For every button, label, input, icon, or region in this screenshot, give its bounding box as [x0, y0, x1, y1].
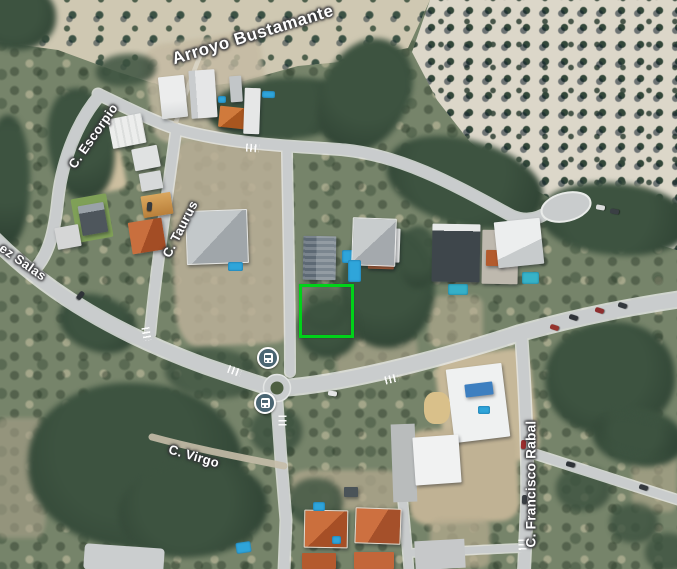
house-roof: [78, 202, 109, 236]
swimming-pool: [262, 91, 275, 98]
swimming-pool: [235, 541, 251, 554]
satellite-map-canvas[interactable]: Arroyo Bustamante C. Escorpio C. Taurus …: [0, 0, 677, 569]
house-under-construction: [140, 192, 173, 218]
swimming-pool: [478, 406, 490, 414]
crosswalk: [279, 416, 287, 429]
roundabout-island: [271, 382, 284, 395]
crosswalk: [246, 144, 260, 153]
house-roof: [185, 209, 249, 265]
paved-junction: [414, 539, 465, 569]
building: [412, 434, 461, 485]
building: [243, 88, 261, 135]
swimming-pool: [522, 272, 539, 284]
swimming-pool: [313, 502, 325, 511]
swimming-pool: [332, 536, 341, 544]
swimming-pool: [218, 96, 226, 103]
house-roof: [354, 507, 401, 545]
building: [431, 224, 480, 283]
house-roof: [302, 553, 336, 569]
bus-stop-icon[interactable]: [257, 347, 279, 369]
label-calle-francisco-rabal: C. Francisco Rabal: [524, 421, 539, 548]
building: [158, 75, 188, 119]
swimming-pool: [348, 260, 361, 282]
bus-icon: [261, 398, 270, 408]
cul-de-sac: [538, 187, 593, 226]
building: [188, 69, 217, 119]
building: [494, 218, 545, 269]
building: [54, 224, 81, 250]
car: [328, 390, 338, 396]
house-roof: [304, 510, 349, 549]
playground: [424, 392, 450, 424]
building: [303, 236, 337, 281]
building: [446, 363, 511, 443]
house-roof: [354, 552, 394, 569]
highlight-rectangle[interactable]: [299, 284, 354, 338]
bus-stop-icon[interactable]: [254, 392, 276, 414]
paved-lot: [83, 543, 165, 569]
swimming-pool: [448, 284, 468, 295]
car: [147, 202, 153, 211]
building: [229, 76, 243, 103]
building: [344, 487, 358, 497]
swimming-pool: [228, 262, 243, 271]
house-roof: [218, 106, 246, 130]
bus-icon: [264, 353, 273, 363]
building: [139, 170, 164, 192]
